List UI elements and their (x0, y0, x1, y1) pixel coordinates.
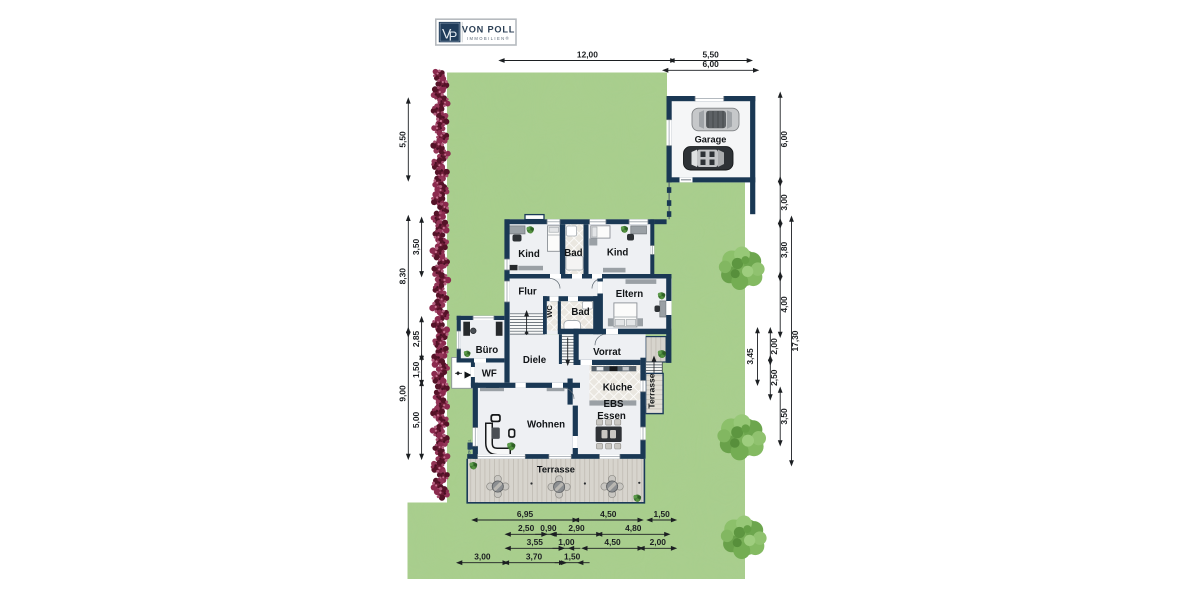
svg-text:3,50: 3,50 (411, 238, 421, 255)
svg-text:1,00: 1,00 (558, 537, 575, 547)
svg-text:VON POLL: VON POLL (468, 439, 472, 456)
svg-text:2,00: 2,00 (769, 338, 779, 355)
svg-text:2,50: 2,50 (518, 523, 535, 533)
svg-text:5,50: 5,50 (702, 49, 719, 59)
svg-text:WC: WC (545, 305, 554, 318)
svg-text:8,30: 8,30 (398, 268, 408, 285)
svg-text:17,30: 17,30 (790, 330, 800, 351)
svg-text:6,00: 6,00 (702, 59, 719, 69)
svg-text:Bad: Bad (564, 248, 582, 259)
svg-text:2,90: 2,90 (568, 523, 585, 533)
svg-text:Vorrat: Vorrat (593, 347, 622, 358)
svg-text:4,00: 4,00 (779, 296, 789, 313)
svg-text:5,00: 5,00 (411, 411, 421, 428)
svg-text:Garage: Garage (695, 134, 727, 144)
svg-text:6,95: 6,95 (517, 509, 534, 519)
svg-text:9,00: 9,00 (398, 385, 408, 402)
svg-text:4,50: 4,50 (600, 509, 617, 519)
svg-text:EBS: EBS (604, 399, 624, 410)
svg-text:WF: WF (482, 369, 497, 380)
svg-text:Terrasse: Terrasse (646, 373, 656, 408)
svg-text:3,50: 3,50 (779, 408, 789, 425)
svg-text:P: P (449, 28, 458, 43)
svg-text:1,50: 1,50 (564, 552, 581, 562)
svg-text:3,00: 3,00 (779, 194, 789, 211)
svg-text:3,45: 3,45 (745, 348, 755, 365)
svg-text:Essen: Essen (597, 411, 626, 422)
svg-text:Kind: Kind (518, 249, 540, 260)
svg-text:5,50: 5,50 (398, 131, 408, 148)
svg-text:4,80: 4,80 (625, 523, 642, 533)
svg-text:IMMOBILIEN®: IMMOBILIEN® (467, 36, 510, 41)
svg-text:Küche: Küche (603, 383, 633, 394)
svg-text:3,70: 3,70 (526, 552, 543, 562)
svg-text:VON POLL: VON POLL (462, 25, 515, 35)
svg-text:3,00: 3,00 (474, 552, 491, 562)
svg-text:6,00: 6,00 (779, 131, 789, 148)
svg-text:1,50: 1,50 (654, 509, 671, 519)
svg-text:4,50: 4,50 (604, 537, 621, 547)
svg-text:1,50: 1,50 (411, 361, 421, 378)
svg-text:Terrasse: Terrasse (537, 464, 575, 474)
svg-text:Diele: Diele (523, 355, 547, 366)
svg-text:0,90: 0,90 (540, 523, 557, 533)
svg-text:2,00: 2,00 (650, 537, 667, 547)
svg-text:3,80: 3,80 (779, 242, 789, 259)
svg-text:2,50: 2,50 (769, 369, 779, 386)
svg-text:Eltern: Eltern (616, 289, 644, 300)
svg-text:Wohnen: Wohnen (527, 420, 565, 431)
svg-text:Büro: Büro (476, 345, 499, 356)
svg-text:Kind: Kind (607, 248, 629, 259)
svg-text:2,85: 2,85 (411, 330, 421, 347)
svg-text:3,55: 3,55 (527, 537, 544, 547)
svg-text:Bad: Bad (571, 307, 589, 318)
svg-text:12,00: 12,00 (577, 49, 598, 59)
svg-text:Flur: Flur (518, 287, 537, 298)
